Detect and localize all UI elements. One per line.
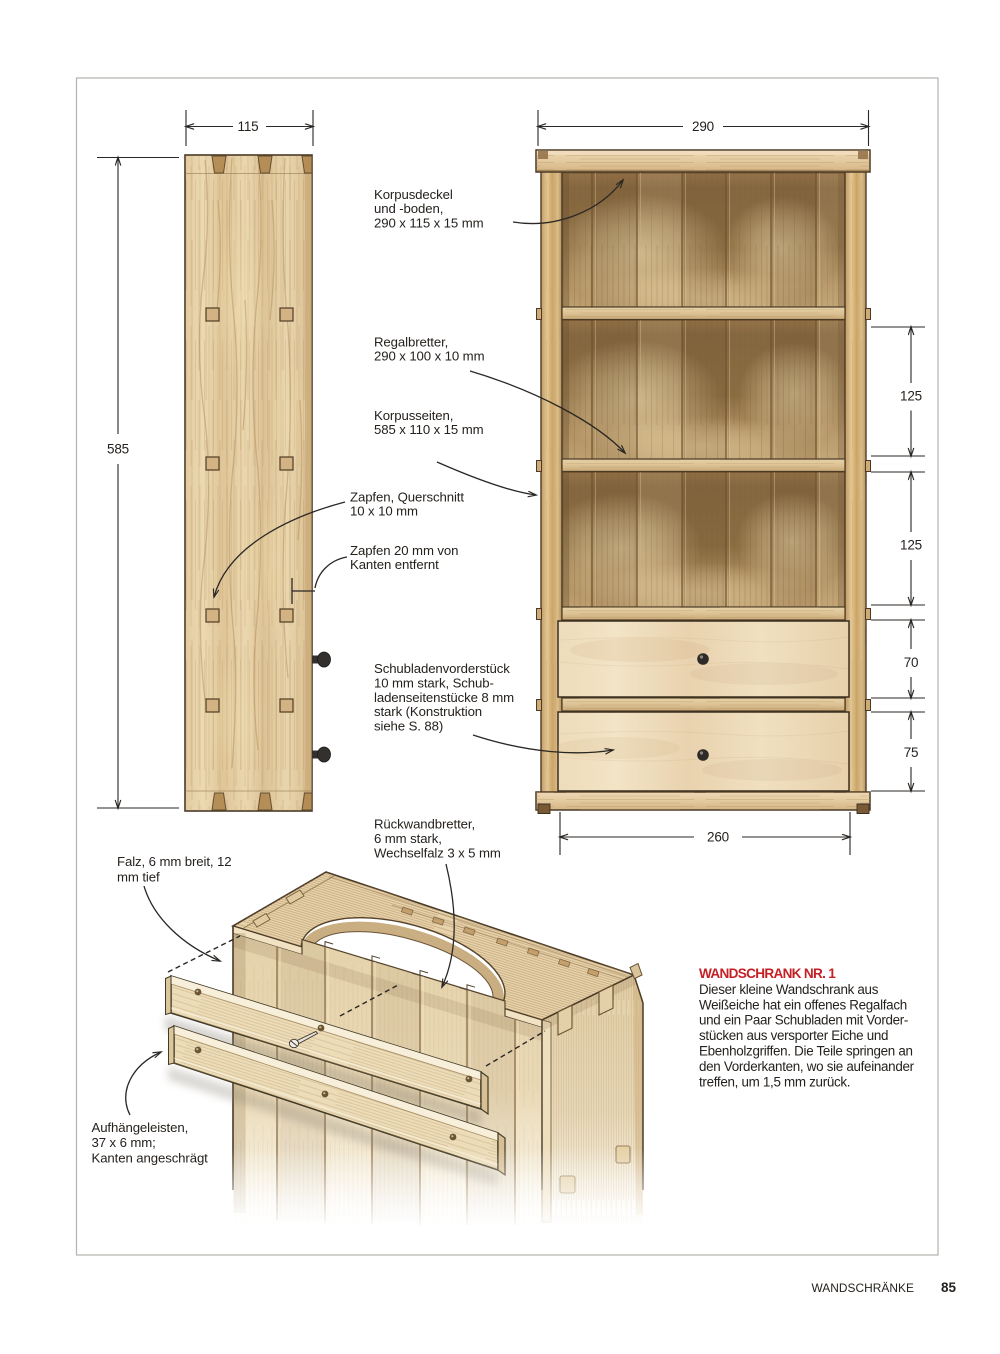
svg-text:Zapfen 20 mm vonKanten entfern: Zapfen 20 mm vonKanten entfernt <box>350 543 458 572</box>
svg-text:290: 290 <box>692 119 714 134</box>
svg-text:WANDSCHRÄNKE: WANDSCHRÄNKE <box>811 1281 914 1295</box>
svg-text:75: 75 <box>904 745 919 760</box>
svg-text:70: 70 <box>904 655 919 670</box>
svg-text:Falz, 6 mm breit, 12mm tief: Falz, 6 mm breit, 12mm tief <box>117 854 232 884</box>
svg-text:Regalbretter,290 x 100 x 10 mm: Regalbretter,290 x 100 x 10 mm <box>374 335 485 364</box>
svg-text:Schubladenvorderstück10 mm sta: Schubladenvorderstück10 mm stark, Schub-… <box>374 661 514 734</box>
svg-text:WANDSCHRANK NR. 1: WANDSCHRANK NR. 1 <box>699 966 836 981</box>
svg-text:Dieser kleine Wandschrank ausW: Dieser kleine Wandschrank ausWeißeiche h… <box>699 982 915 1089</box>
svg-text:260: 260 <box>707 830 729 845</box>
svg-text:125: 125 <box>900 389 922 404</box>
svg-text:115: 115 <box>238 119 259 134</box>
svg-text:Zapfen, Querschnitt10 x 10 mm: Zapfen, Querschnitt10 x 10 mm <box>350 490 464 519</box>
svg-text:85: 85 <box>941 1280 957 1295</box>
svg-text:125: 125 <box>900 538 922 553</box>
svg-text:585: 585 <box>107 442 129 457</box>
svg-text:Rückwandbretter,6 mm stark,Wec: Rückwandbretter,6 mm stark,Wechselfalz 3… <box>374 817 501 861</box>
svg-text:Korpusdeckelund -boden,290 x 1: Korpusdeckelund -boden,290 x 115 x 15 mm <box>374 187 484 230</box>
svg-text:Aufhängeleisten,37 x 6 mm;Kant: Aufhängeleisten,37 x 6 mm;Kanten angesch… <box>92 1120 209 1165</box>
svg-text:Korpusseiten,585 x 110 x 15 mm: Korpusseiten,585 x 110 x 15 mm <box>374 408 484 437</box>
